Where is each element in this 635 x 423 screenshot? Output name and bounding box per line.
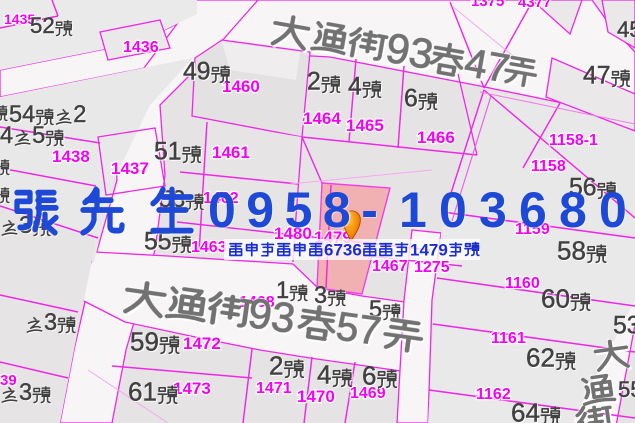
svg-text:1158: 1158 — [531, 158, 566, 175]
svg-text:1465: 1465 — [346, 116, 384, 135]
svg-text:0958-: 0958- — [208, 182, 388, 238]
svg-text:5: 5 — [32, 123, 45, 149]
svg-text:55: 55 — [618, 377, 635, 402]
svg-text:1463: 1463 — [191, 239, 227, 256]
svg-text:103680: 103680 — [399, 182, 635, 238]
svg-text:1436: 1436 — [123, 39, 159, 56]
svg-text:1464: 1464 — [303, 109, 341, 128]
svg-text:1438: 1438 — [52, 147, 90, 166]
svg-text:3: 3 — [314, 283, 327, 309]
svg-text:1160: 1160 — [505, 275, 540, 292]
svg-text:57: 57 — [333, 304, 383, 354]
svg-text:47: 47 — [583, 63, 611, 90]
svg-text:3: 3 — [19, 380, 32, 406]
svg-text:53: 53 — [613, 313, 635, 340]
svg-text:1466: 1466 — [417, 128, 455, 147]
svg-text:58: 58 — [557, 235, 586, 265]
svg-text:6: 6 — [404, 86, 418, 113]
svg-text:1275: 1275 — [414, 259, 450, 276]
svg-text:64: 64 — [511, 397, 540, 423]
svg-text:1375: 1375 — [471, 0, 504, 10]
svg-text:49: 49 — [183, 59, 211, 86]
svg-text:1437: 1437 — [111, 159, 149, 178]
svg-text:4377: 4377 — [518, 0, 551, 11]
svg-text:47: 47 — [461, 40, 512, 91]
svg-text:62: 62 — [526, 342, 555, 372]
svg-text:4: 4 — [0, 123, 13, 149]
svg-text:2: 2 — [307, 69, 321, 96]
svg-text:6736: 6736 — [324, 241, 362, 260]
svg-text:6: 6 — [362, 360, 376, 390]
svg-text:1470: 1470 — [297, 387, 335, 406]
svg-text:51: 51 — [154, 139, 182, 166]
svg-text:60: 60 — [541, 283, 570, 313]
svg-text:1158-1: 1158-1 — [549, 132, 598, 149]
svg-text:1473: 1473 — [173, 379, 211, 398]
svg-text:1472: 1472 — [183, 334, 221, 353]
svg-text:39: 39 — [0, 372, 17, 389]
svg-text:93: 93 — [383, 24, 437, 78]
svg-text:1162: 1162 — [476, 386, 511, 403]
svg-text:1479: 1479 — [410, 241, 448, 260]
svg-text:93: 93 — [245, 289, 298, 342]
svg-text:45: 45 — [617, 17, 635, 42]
svg-text:2: 2 — [73, 102, 86, 128]
svg-text:3: 3 — [44, 310, 57, 336]
svg-text:52: 52 — [30, 13, 55, 38]
svg-text:1161: 1161 — [491, 330, 526, 347]
svg-text:1471: 1471 — [256, 380, 292, 397]
svg-text:1467: 1467 — [372, 258, 408, 275]
svg-text:59: 59 — [130, 326, 159, 356]
svg-text:61: 61 — [128, 376, 157, 406]
svg-text:1461: 1461 — [212, 143, 250, 162]
svg-text:4: 4 — [317, 359, 331, 389]
svg-text:2: 2 — [269, 350, 283, 380]
svg-text:4: 4 — [348, 74, 362, 101]
